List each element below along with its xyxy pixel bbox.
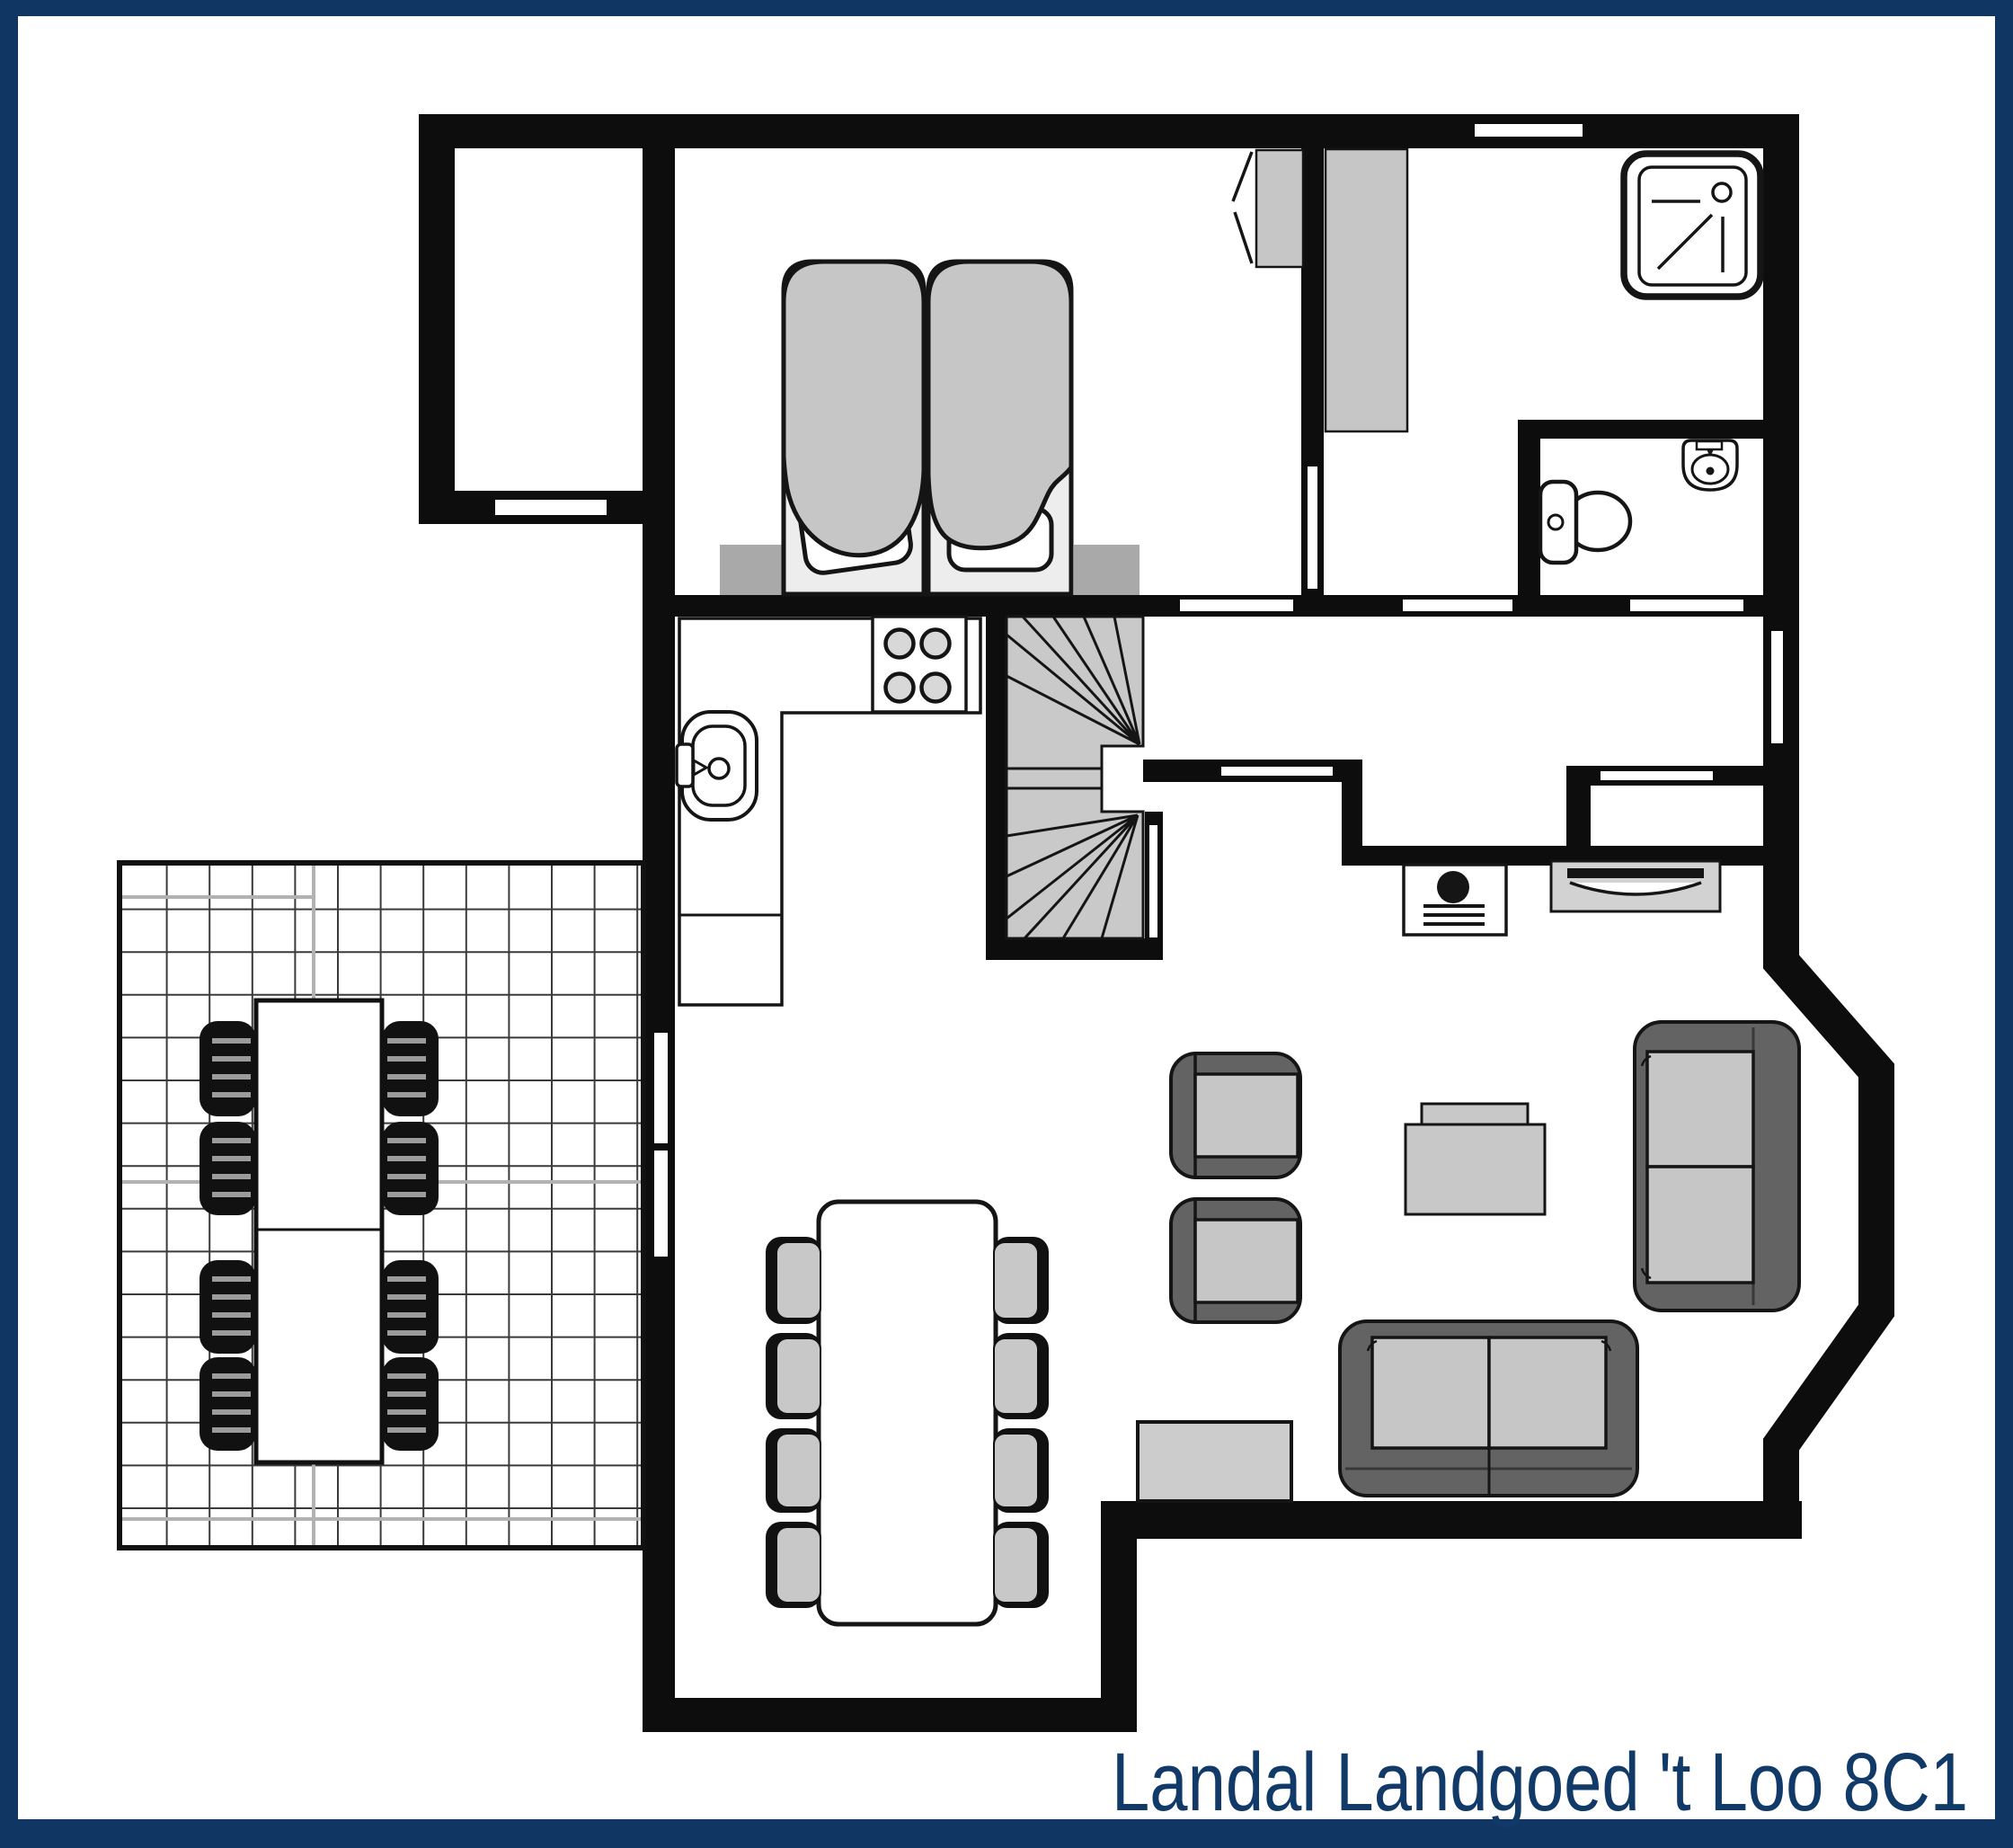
svg-text:Landal Landgoed 't Loo 8C1: Landal Landgoed 't Loo 8C1 — [1112, 1737, 1968, 1828]
